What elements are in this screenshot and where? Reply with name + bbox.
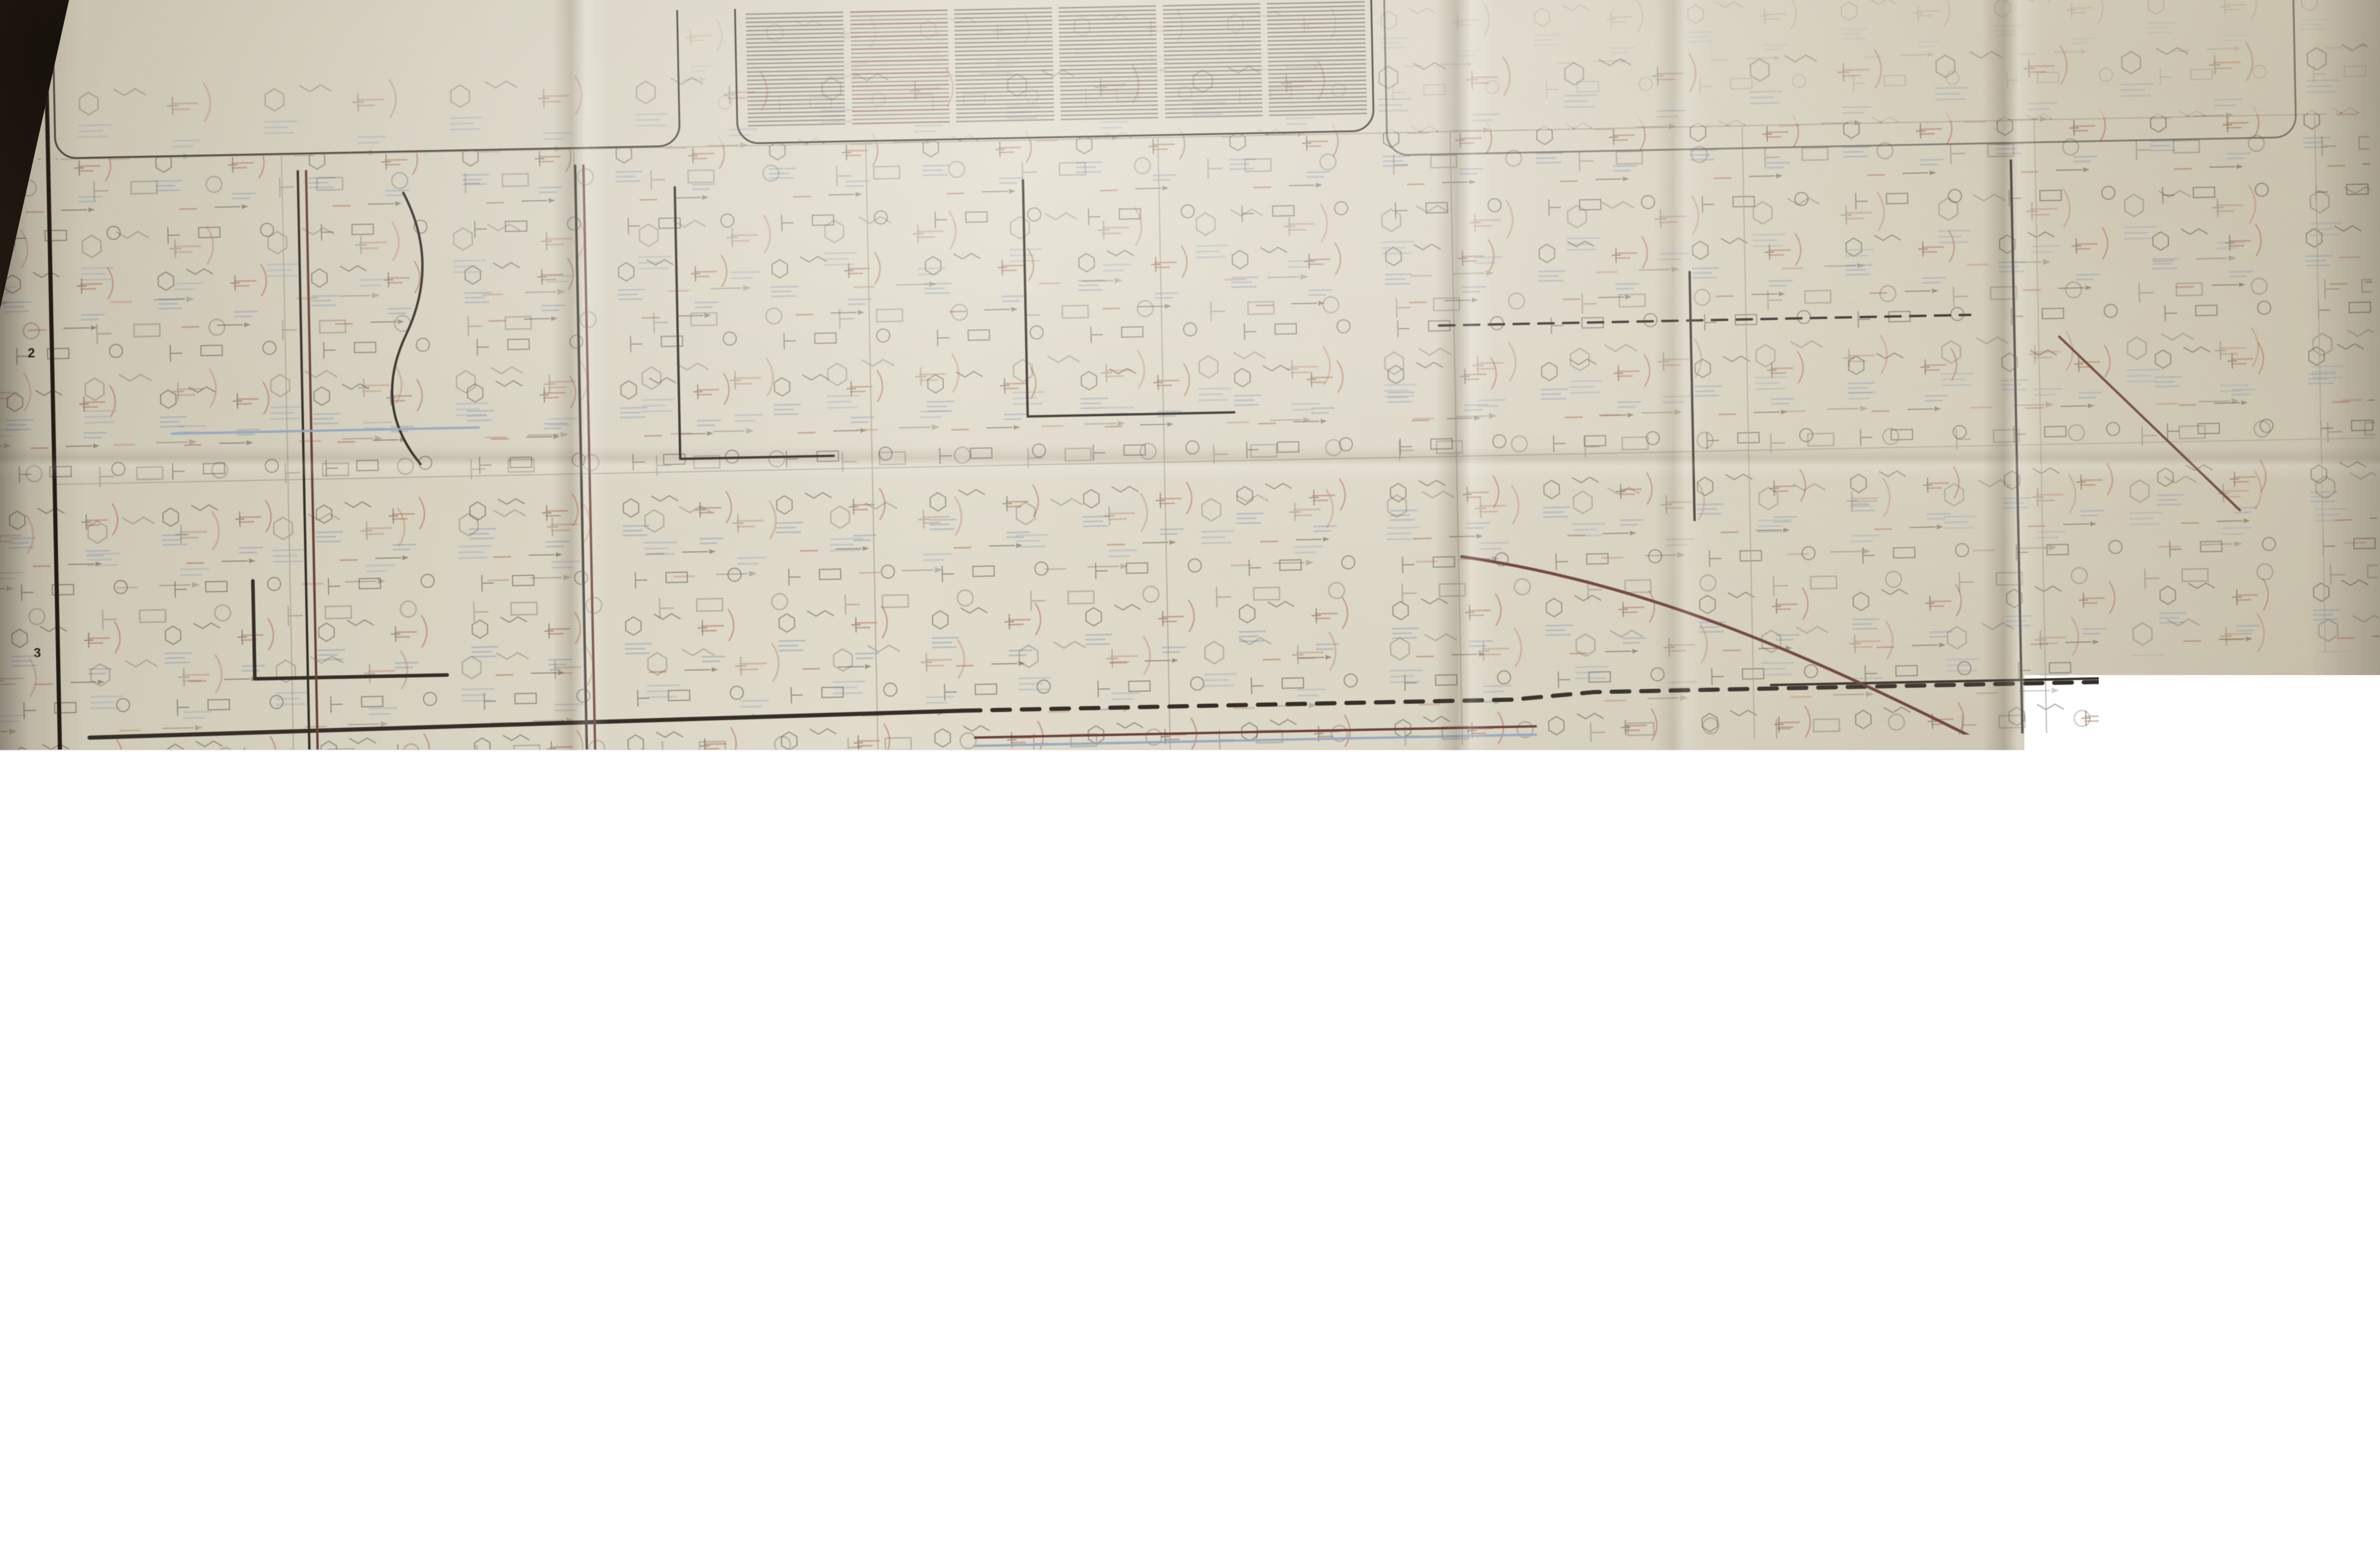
pathway-node-label: 1,3-P₂-D- GLYCERATE <box>855 714 898 730</box>
pathway-node-label: 3'-PHOSPHOADENYLYL- SULFATE (PAPS) <box>2229 291 2315 308</box>
pathway-node-label: ALDOSTERONE HEMIACETAL <box>1562 1273 1618 1289</box>
pathway-node-label: BETAINE ALDEHYDE <box>334 1343 374 1359</box>
pathway-node-label: L-ARGININE <box>1575 1125 1628 1135</box>
pathway-node-label: α-CAROTENE <box>1284 1353 1332 1361</box>
pathway-node-label: D-3-HYDROXYACYL- ENZYME <box>1159 1020 1231 1036</box>
pathway-node-label: L-CITRULLINE <box>1502 1142 1559 1154</box>
pathway-node-label: L-GLUTAMYL-P <box>1864 943 1918 952</box>
pathway-node-label: SPHINGOMYELIN PHOSPHODIESTERASE <box>616 1330 686 1344</box>
pathway-node-label: L-SERINE <box>222 1399 263 1410</box>
pathway-node-label: ETHANOL- AMINE <box>402 1171 446 1190</box>
pathway-node-label: COBALAMIN <box>139 1271 184 1279</box>
pathway-node-label: 3-OXOACYL-CoA <box>1328 1177 1388 1186</box>
pathway-node-label: 17α-HYDROXY- PROGESTERONE <box>1941 1304 2002 1321</box>
pathway-node-label: DEHYDRO- ACYL-CoA <box>1061 1019 1100 1035</box>
pathway-node-label: ALDEHYDE <box>1004 1289 1044 1298</box>
pathway-node-label: PROGESTERONE <box>1890 1279 1961 1289</box>
pathway-node-label: ADP-D-GLUCOSE <box>171 790 233 799</box>
pathway-node-label: FUMARATE <box>1616 217 1656 226</box>
pathway-node-label: CHOLINE PHOSPHO- TRANSFERASE <box>637 1238 699 1252</box>
pathway-region-label: Phosphatides <box>793 1170 869 1189</box>
pathway-node-label: FATTY ACID <box>1071 1239 1127 1252</box>
pathway-node-label: CERAMIDE <box>578 1311 623 1320</box>
pathway-node-label: SCHARDINGER DEXTRIN <box>64 623 152 632</box>
pathway-node-label: PALMITOYL-CoA <box>221 1452 290 1462</box>
pathway-node-label: UDP-D-GLUCOSE <box>172 727 244 737</box>
pathway-node-label: COBALAMIN (VITAMIN B₁₂) <box>2185 642 2237 659</box>
pathway-node-label: 2-DEHYDRO-3-DEOXY- 6-P-GLUCONATE <box>485 510 565 527</box>
pathway-node-label: D-RIBULOSE <box>574 510 619 518</box>
pathway-node-label: RETINOL DEHYDRO- GENASE <box>979 1417 1040 1431</box>
pathway-node-label: GLYCEROL <box>844 878 897 889</box>
pathway-node-label: L-LYSINE <box>2164 213 2202 223</box>
publisher-name: BOEHRINGER MANNHEIM <box>0 22 61 50</box>
pathway-node-label: L-ORNITHINE <box>1667 1025 1722 1035</box>
poster-paper: 12345 BIOCHEMICAL PATHWAYS GERHARD MICHA… <box>0 0 2380 1507</box>
pathway-node-label: L-3-HYDROXY- ACYL-CoA <box>1269 1246 1320 1262</box>
boehringer-logo-icon: boehringer <box>0 23 22 57</box>
pathway-node-label: 2-OXO- GLUTARATE <box>965 853 1009 870</box>
pathway-node-label: L-ALANINE <box>1057 876 1103 886</box>
pathway-node-label: 11-DEOXYCORTISOL (17α-HYDROXY- CORTEXONE… <box>1999 1279 2072 1304</box>
pathway-node-label: MALO- NATE <box>1431 1010 1458 1027</box>
pathway-region-label: Entner- Doudoroff pathway <box>453 538 513 579</box>
pathway-node-label: GLYCEROL-3P <box>773 882 825 891</box>
pathway-node-label: ACETO- ACETATE <box>1464 1232 1506 1252</box>
pathway-node-label: N-ACETYL- GLUTAMATE SEMIALDEHYDE <box>1817 1004 1876 1028</box>
pathway-node-label: L-Δ¹-PYRROLINE- 5-CARBOXYLATE <box>1914 953 1976 970</box>
pathway-node-label: UDP-GLUCOSE <box>537 1361 589 1371</box>
pathway-node-label: NAD⁺ <box>1004 1324 1021 1330</box>
pathway-node-label: ACYL-CoA <box>1060 1098 1103 1107</box>
pathway-node-label: L-PROLINE <box>2001 952 2047 962</box>
pathway-node-label: DOLICHOL <box>1150 1426 1194 1435</box>
photo-of-poster: 12345 BIOCHEMICAL PATHWAYS GERHARD MICHA… <box>0 0 2380 1507</box>
pathway-node-label: TETRAHYDRO- CORTICOSTERONE <box>1621 1354 1691 1371</box>
pathway-node-label: RETINOATE <box>953 1392 994 1400</box>
pathway-node-label: 11-cis-RETINAL <box>1076 1448 1130 1457</box>
pathway-node-label: ISOVALERYL-CoA <box>349 1501 412 1510</box>
pathway-node-label: D-GLYCE- RATE <box>1003 763 1038 779</box>
pathway-node-label: CoA-SH <box>1489 1180 1512 1186</box>
pathway-node-label: L-GLUTAMATE <box>1820 853 1880 863</box>
pathway-node-label: L-ASCORBATE (VITAMIN C) <box>403 158 462 178</box>
pathway-node-label: 5,10-METHYLENE- THMPT <box>97 1412 161 1429</box>
pathway-node-label: L-SERINE <box>1701 303 1735 312</box>
pathway-node-label: CREATINE-P <box>1686 909 1737 919</box>
pathway-node-label: L-THYROXINE <box>1650 162 1700 171</box>
pathway-node-label: 17α-HYDROXYPROGESTERONE <box>2050 1256 2162 1266</box>
pathway-node-label: 4'-PHOSPHO- PANTETHEINE <box>1341 1114 1400 1134</box>
pathway-node-label: ERGOSTEROL <box>1416 1474 1467 1483</box>
pathway-node-label: HYDROXY- PYRUVATE <box>1010 860 1049 876</box>
pathway-node-label: NADPH + H⁺ <box>1178 985 1215 992</box>
pathway-node-label: L-GLUTAMATE- 5-SEMIALDEHYDE <box>1871 1004 1936 1021</box>
pathway-node-label: NADH + H⁺ <box>1055 1304 1088 1311</box>
pathway-node-label: ALKANE <box>815 1351 845 1359</box>
pathway-node-label: D-RIBULOSE 5-P <box>586 596 645 605</box>
pathway-node-label: 5'-DEOXYADENOSYL- COBALAMIN (COENZYME B₁… <box>2279 634 2347 666</box>
pathway-node-label: 3-(or 2)-LYSOLECITHIN <box>784 1284 864 1294</box>
pathway-node-label: ACETYL- ENZYME <box>1364 964 1395 979</box>
pathway-node-label: 3-P-D- GLYCERATE <box>929 714 972 730</box>
pathway-node-label: P-ENOL- PYRUVATE <box>1052 698 1091 714</box>
pathway-node-label: MELANIN <box>1513 147 1546 155</box>
pathway-node-label: GUANIDINO- ACETATE-P <box>1707 973 1751 989</box>
pathway-node-label: LECITHIN <box>700 1217 745 1229</box>
pathway-node-label: METHIONINE <box>269 1275 322 1288</box>
pathway-node-label: D-XYLULOSE 5-P <box>645 641 705 649</box>
pathway-region-label: Fatty acid oxidation <box>1185 1278 1263 1307</box>
pathway-node-label: 11-DEOXYCORTICO- STERONE (CORTEXONE) <box>1782 1299 1871 1317</box>
pathway-node-label: 3-HYDROXYBUTYRATE DEHYDROGENASE <box>1401 1272 1470 1286</box>
pathway-node-label: AMYLOPECTIN, MULTIPLE BRANCHED GLYCOGEN <box>0 739 93 756</box>
pathway-node-label: N-ACETYL-GLUTAMYL-P <box>1769 955 1855 965</box>
pathway-node-label: ACETYL- ENZYME <box>1374 1024 1406 1040</box>
pathway-node-label: BUTYRYL- ENZYME <box>1330 1002 1367 1018</box>
pathway-node-label: ATP <box>440 1190 452 1197</box>
pathway-labels: D-GLUCURONATEL-GULONOLACTONEL-ASCORBATE … <box>0 0 2380 1531</box>
pathway-node-label: L-GLUT- AMATE <box>966 831 997 847</box>
pathway-node-label: COENZYME M <box>91 1368 141 1376</box>
pathway-region-label: Lipid metabolism <box>919 1044 986 1073</box>
pathway-node-label: AMYLOSE or OUTER GLYCOGEN BRANCH <box>42 714 145 731</box>
pathway-node-label: TARTRONATE SEMIALDEHYDE <box>982 632 1039 648</box>
pathway-region-label: Carotenoids <box>1169 1350 1238 1369</box>
pathway-node-label: CHOLINE <box>397 1253 440 1265</box>
pathway-node-label: 2,3-P₂-D- GLYCERATE <box>968 682 1012 698</box>
pathway-node-label: ACETATE <box>368 1253 403 1263</box>
pathway-node-label: S-ADENOSYL- METHIONINE <box>728 1170 777 1187</box>
pathway-node-label: ACETALDEHYDE <box>1222 793 1281 802</box>
pathway-node-label: D-RIBOSE <box>683 495 719 504</box>
pathway-node-label: ACYL-CARRIER- PROTEIN (ACP) <box>1439 1090 1496 1106</box>
pathway-node-label: SPHINGO- MYELIN <box>706 1292 742 1308</box>
pathway-node-label: AMMONIA 2NH₄⁺ <box>1695 1233 1731 1249</box>
pathway-node-label: UREA <box>1653 1131 1684 1144</box>
pathway-region-label: Ketone bodies <box>1415 1147 1461 1176</box>
pathway-node-label: 3-HYDROXY- PYRUVATE <box>931 770 976 786</box>
pathway-node-label: SULFATE <box>2117 306 2157 318</box>
pathway-node-label: D-6-P-GLUCONATE <box>493 595 560 604</box>
pathway-node-label: AMINOACYL- PHOSPHATIDYLGLYCEROL <box>759 943 855 960</box>
pathway-node-label: ACETOACETYL- ENZYME <box>1117 942 1174 959</box>
pathway-node-label: FATTY ACID <box>1233 1013 1289 1026</box>
pathway-node-label: L-CITRULLINE <box>1765 1093 1822 1105</box>
pathway-node-label: D-GLYCERAL- DEHYDE 3-P <box>766 710 816 726</box>
pathway-node-label: D-GLUCURONATE <box>53 171 117 180</box>
pathway-node-label: BETAINE <box>249 1309 286 1318</box>
pathway-node-label: ARGININE KINASE <box>1549 1160 1579 1173</box>
pathway-node-label: S-ADENOSYL- HOMO- CYSTEINE <box>726 1187 776 1210</box>
pathway-node-label: CARBAMOYL-P <box>1695 1092 1749 1100</box>
pathway-node-label: CHOLINE KINASE <box>450 1244 478 1257</box>
pathway-node-label: D-LACTATE <box>1182 798 1222 806</box>
pathway-node-label: D-3-HYDROXY- BUTYRYL- ENZYME <box>1147 1054 1200 1078</box>
pathway-node-label: dTDP-D-GALACTOSE <box>207 611 282 620</box>
pathway-node-label: ACETYL-P <box>621 506 658 514</box>
pathway-node-label: D-GLYCERAL- DEHYDE <box>839 817 889 833</box>
pathway-node-label: CARBAMOYLPHOS- PHATE SYNTHASE <box>1656 1069 1715 1082</box>
pathway-node-label: ACETOACETATE <box>1642 201 1700 210</box>
pathway-node-label: FORMATE <box>852 619 888 627</box>
pathway-node-label: MALONYL-CoA <box>1374 934 1436 944</box>
pathway-node-label: SUCCINYL- CoA <box>1394 1197 1435 1214</box>
pathway-node-label: CORTICOSTERONE <box>1715 1284 1794 1295</box>
pathway-node-label: ATP <box>1690 965 1702 971</box>
pathway-node-label: dTDP-D-GLUCOSE <box>255 672 320 681</box>
pathway-region-label: Polysaccharides <box>0 649 82 669</box>
pathway-node-label: L-CYSTATHIONINE <box>1639 328 1704 337</box>
pathway-node-label: β-CAROTENE <box>1287 1394 1335 1402</box>
pathway-node-label: CROTONYL- ENZYME <box>1248 1082 1291 1098</box>
pathway-node-label: all-trans-RETINOL (VITAMIN A) <box>936 1439 1004 1457</box>
pathway-node-label: D-RIBOSE 5-P <box>685 592 734 600</box>
pathway-node-label: PHOSPHO- GLYCERATE KINASE <box>882 730 943 743</box>
pathway-region-label: Urea Cycle <box>1642 1245 1681 1274</box>
poster-editor: GERHARD MICHAL, EDITOR <box>0 22 61 73</box>
pathway-node-label: ALDOSTERONE <box>1598 1287 1663 1297</box>
poster-content: 12345 BIOCHEMICAL PATHWAYS GERHARD MICHA… <box>0 0 2380 1531</box>
pathway-node-label: ACYL- CARNITINE <box>1134 1258 1174 1273</box>
pathway-node-label: CREATINE <box>1619 915 1661 924</box>
pathway-node-label: ETHANOL <box>1241 852 1284 864</box>
pathway-node-label: GUANIDINO- ACETATE <box>1633 979 1678 995</box>
pathway-node-label: ACETONE <box>1364 1220 1405 1229</box>
pathway-node-label: D-SEDOHEP- TULOSE 1,7-P₂ <box>837 657 890 673</box>
pathway-node-label: 1-ALCOHOL <box>917 1300 960 1308</box>
pathway-node-label: ACETYL-CoA <box>338 1289 391 1301</box>
pathway-node-label: D-3-HYDROXY- BUTYRATE <box>1354 1244 1415 1263</box>
pathway-node-label: H₂O <box>1242 1057 1254 1063</box>
pathway-node-label: SPHINGOSINE <box>456 1326 507 1335</box>
margin-number: 1 <box>11 45 40 61</box>
pathway-node-label: 5,10-METHENYL- THMPT <box>21 1420 80 1436</box>
pathway-node-label: all-trans- RETINAL <box>1077 1393 1109 1409</box>
pathway-node-label: 2-OXO-5- AMINOVALERATE <box>1921 1082 1984 1098</box>
pathway-region-label: Methane oxidation <box>882 638 939 667</box>
pathway-node-label: L-γ-GLUTAMYL- CYSTEINE <box>1892 889 1949 906</box>
pathway-node-label: METHYL- CoM <box>51 1334 84 1350</box>
pathway-node-label: DIACYLGLYCEROL-3P (L-PHOSPHATIDATE) <box>876 1092 954 1108</box>
pathway-node-label: PROSTAGLANDINS <box>967 919 1042 931</box>
pathway-node-label: O-PHOSPHO- ETHANOLAMINE <box>478 1162 537 1178</box>
pathway-node-label: HOMOCYSTEINE <box>269 1288 335 1301</box>
pathway-node-label: L-EPINEPHRINE <box>1673 149 1730 158</box>
pathway-node-label: GLYCERONE-P (DIHYDROXY- ACETONE-P) <box>773 772 826 796</box>
pathway-node-label: 3-OXOACYL- ENZYME <box>1176 962 1221 978</box>
pathway-node-label: 3-DEHYDRO- SPHINGANINE <box>306 1408 357 1424</box>
pathway-node-label: 2-P-D- GLYCERATE <box>993 706 1037 721</box>
pathway-node-label: 5-AMINO- VALERATE <box>2005 1076 2044 1092</box>
pathway-node-label: BUTYRYL- ENZYME <box>1308 959 1345 975</box>
pathway-node-label: RED. GLUTATHIONE (GSH) <box>1967 877 2044 895</box>
pathway-node-label: 5-METHYL- THMPT <box>136 1318 175 1334</box>
pathway-node-label: L-ARGINYL-tRNA <box>1559 1217 1619 1226</box>
pathway-node-label: cis-VACCENATE <box>1047 907 1104 916</box>
pathway-node-label: TUBERCULOSTEARATE <box>891 926 976 936</box>
pathway-node-label: ACETYL-MALONYL- ENZYME <box>1198 889 1268 906</box>
pathway-node-label: GLYCINE <box>1966 920 2005 932</box>
pathway-node-label: 4-FUMARYL- ACETOACETATE <box>1549 204 1608 221</box>
logo-wordmark: boehringer <box>0 37 19 44</box>
pathway-node-label: TRIACYLGLYCEROL (TRIGLYCERIDE) <box>888 1235 972 1254</box>
pathway-node-label: PYRUVATE KINASE <box>1087 714 1119 727</box>
pathway-node-label: CELLULOSE <box>104 584 159 595</box>
pathway-node-label: CTP <box>525 1184 538 1191</box>
pathway-node-label: ACYL-GLY- CEROL-3P <box>980 1050 1019 1066</box>
pathway-node-label: ACYL-ENZYME <box>1275 988 1328 997</box>
pathway-node-label: L-GLUTAMINE <box>1727 861 1784 871</box>
pathway-node-label: LYCOPENE <box>1297 1439 1337 1447</box>
pathway-node-label: LACTATE DEHYDROGENASE <box>1116 755 1172 769</box>
pathway-node-label: GLUC- URONIDE <box>1381 1340 1416 1357</box>
pathway-node-label: N-ACETYL-GLUTAMATE <box>1762 898 1846 907</box>
pathway-node-label: ACETYLCHOLINE <box>323 1229 385 1237</box>
pathway-node-label: POLYENOIC ACIDS (e.g. ARACHIDONATE) <box>966 933 1044 949</box>
pathway-region-label: → Glycolysis ← Gluconeo- genesis <box>857 752 931 792</box>
pathway-node-label: ACETYL-CoA CARBOXYLASE <box>1349 873 1396 886</box>
pathway-node-label: L-CYSTEINE <box>1879 869 1923 877</box>
pathway-region-label: Fatty acid synthesis <box>1113 898 1172 928</box>
pathway-node-label: CREATINE KINASE <box>1660 923 1691 936</box>
logo-ring-icon <box>0 28 17 53</box>
pathway-node-label: CoA-SH <box>1208 933 1231 940</box>
pathway-node-label: ERGOCALCIFEROL (VITAMIN D₂) <box>1396 1391 1470 1409</box>
poster-edition: THIRD EDITION · PART 1 <box>0 23 47 90</box>
pathway-node-label: FUMARATE <box>1635 1210 1675 1219</box>
pathway-node-label: PYRUVATE <box>1100 695 1158 710</box>
pathway-node-label: L-ARGININE-P <box>1516 1180 1566 1188</box>
pathway-node-label: PROTEINS <box>1525 1247 1569 1259</box>
pathway-node-label: O-PHOSPHO- CHOLINE <box>485 1240 532 1256</box>
pathway-node-label: L-1-GLYCERO-3- PHOSPHOCHOLINE <box>870 1271 939 1288</box>
pathway-node-label: N-α-ACETYL- ORNITHINE <box>1825 1083 1872 1099</box>
